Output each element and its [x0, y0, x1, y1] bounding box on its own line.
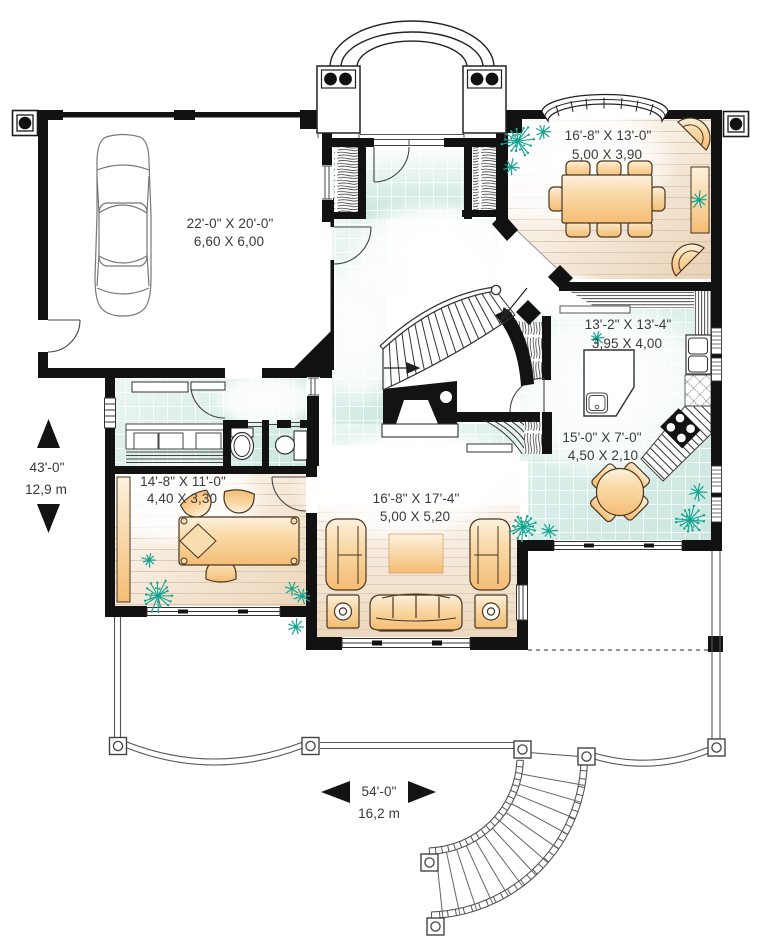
- svg-text:22'-0" X 20'-0": 22'-0" X 20'-0": [187, 216, 274, 231]
- svg-text:16'-8" X 17'-4": 16'-8" X 17'-4": [373, 491, 460, 506]
- svg-text:5,00 X 5,20: 5,00 X 5,20: [380, 509, 450, 524]
- svg-text:16'-8" X 13'-0": 16'-8" X 13'-0": [565, 128, 652, 143]
- svg-text:3,95 X 4,00: 3,95 X 4,00: [592, 336, 662, 351]
- svg-text:15'-0" X 7'-0": 15'-0" X 7'-0": [562, 430, 641, 445]
- svg-text:14'-8" X 11'-0": 14'-8" X 11'-0": [140, 474, 226, 489]
- svg-text:12,9 m: 12,9 m: [25, 482, 67, 497]
- svg-text:54'-0": 54'-0": [362, 784, 397, 799]
- svg-text:13'-2" X 13'-4": 13'-2" X 13'-4": [585, 317, 672, 332]
- svg-text:16,2 m: 16,2 m: [358, 806, 400, 821]
- svg-text:6,60 X 6,00: 6,60 X 6,00: [194, 234, 264, 249]
- svg-text:5,00 X 3,90: 5,00 X 3,90: [572, 147, 642, 162]
- svg-text:4,50 X 2,10: 4,50 X 2,10: [568, 448, 638, 463]
- svg-text:43'-0": 43'-0": [30, 460, 65, 475]
- svg-text:4,40 X 3,30: 4,40 X 3,30: [147, 491, 217, 506]
